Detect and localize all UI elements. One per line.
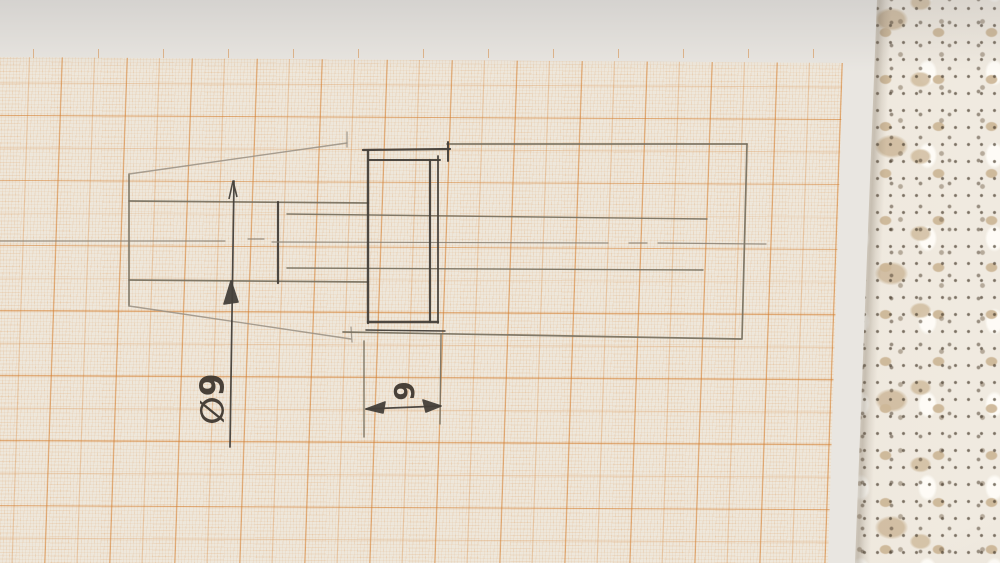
sketch-arrow-hdim-arrow-right <box>423 400 441 412</box>
dimension-label-dim-width: 9 <box>388 381 421 400</box>
sketch-line-taper-bottom <box>129 306 351 339</box>
sketch-line-bottom-line <box>343 332 741 339</box>
sketch-arrow-hdim-arrow-left <box>366 402 385 413</box>
sketch-line-flange-top-outer <box>363 149 450 150</box>
sketch-line-small-cyl-bottom <box>129 280 368 282</box>
sketch-line-taper-bottom-tick <box>351 327 352 342</box>
sketch-line-right-cyl-end <box>742 144 747 339</box>
sketch-arrow-vdim-arrow-mid <box>224 281 238 304</box>
sketch-line-centerline-seg5 <box>658 243 766 244</box>
sketch-line-small-cyl-top <box>129 201 368 203</box>
sketch-line-flange-bottom-outer <box>366 330 445 331</box>
sketch-svg: ∅99 <box>0 0 1000 563</box>
sketch-line-hdim-ext-right <box>440 334 441 424</box>
sketch-line-bore-top <box>287 214 707 219</box>
photo-of-sketch: ∅99 <box>0 0 1000 563</box>
sketch-line-taper-top <box>129 143 347 174</box>
sketch-line-bore-bottom <box>287 268 703 270</box>
sketch-line-centerline-seg3 <box>272 242 608 243</box>
dimension-label-dim-diameter: ∅9 <box>193 373 232 424</box>
